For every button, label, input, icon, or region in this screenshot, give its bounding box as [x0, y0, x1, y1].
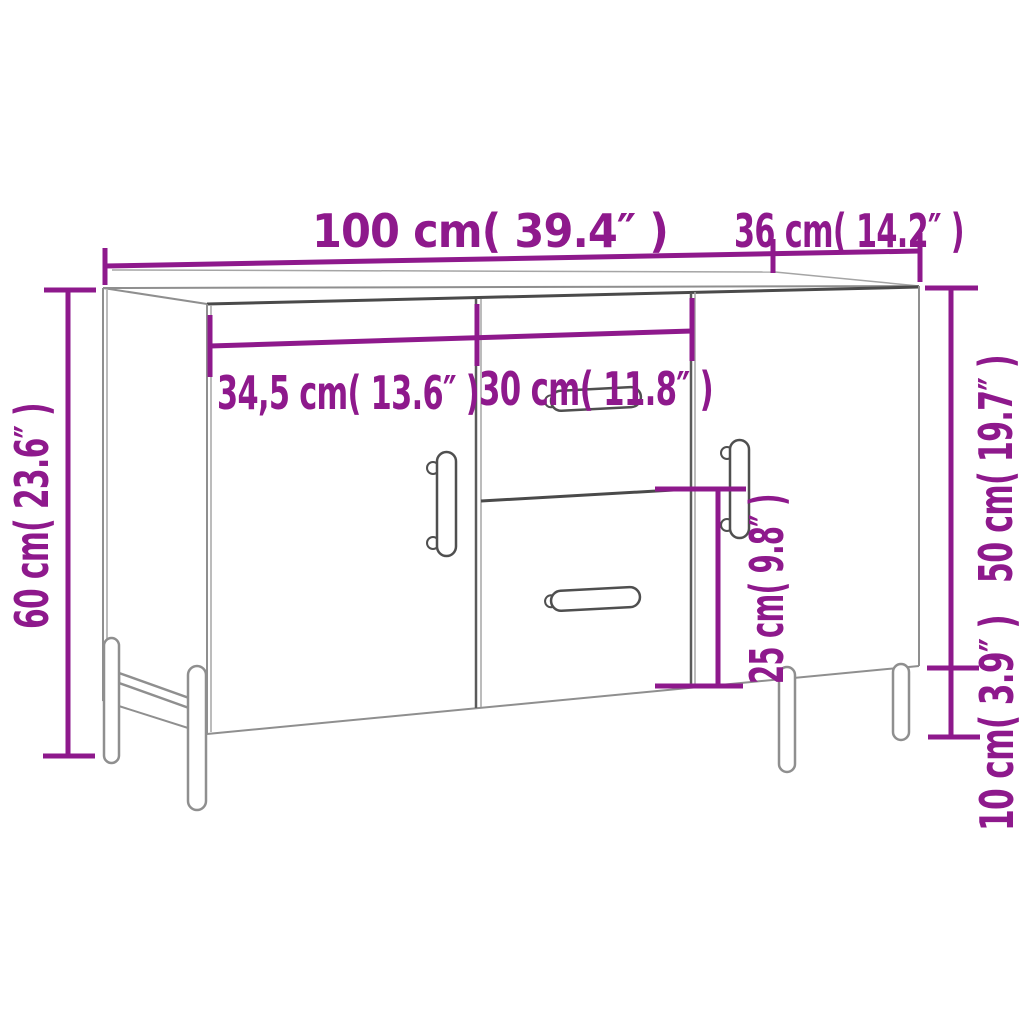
front-top-edge: [207, 287, 919, 304]
top-panel-right-edge: [775, 272, 919, 286]
dim-label-total-height: 60 cm( 23.6″ ): [5, 403, 59, 629]
dim-label-left-door-width: 34,5 cm( 13.6″ ): [217, 366, 479, 420]
left-leg-rail: [119, 673, 189, 708]
back-left-leg: [104, 638, 119, 763]
bottom-drawer-handle-group: [545, 587, 641, 612]
diagram-canvas: 100 cm( 39.4″ ) 36 cm( 14.2″ ) 34,5 cm( …: [0, 0, 1024, 1024]
front-left-leg: [188, 666, 206, 810]
left-door-handle: [437, 452, 456, 556]
front-bottom-edge: [207, 666, 919, 734]
dim-label-drawer-width: 30 cm( 11.8″ ): [479, 362, 713, 416]
left-side-top-edge: [103, 288, 207, 304]
top-panel-back-edge: [112, 270, 775, 272]
dimension-lines: [43, 233, 980, 756]
dim-label-leg-height: 10 cm( 3.9″ ): [970, 615, 1024, 831]
dim-label-total-width: 100 cm( 39.4″ ): [312, 204, 668, 258]
bottom-drawer-handle: [551, 587, 641, 612]
sideboard-drawing: [103, 270, 919, 810]
top-panel-front-edge: [103, 286, 919, 288]
dim-label-drawer-section-height: 25 cm( 9.8″ ): [740, 494, 794, 684]
dim-label-body-height: 50 cm( 19.7″ ): [969, 355, 1023, 583]
dim-line-inner: [210, 331, 692, 346]
dimension-diagram: 100 cm( 39.4″ ) 36 cm( 14.2″ ) 34,5 cm( …: [0, 0, 1024, 1024]
dim-label-depth: 36 cm( 14.2″ ): [734, 204, 964, 258]
front-right-leg: [893, 664, 909, 740]
